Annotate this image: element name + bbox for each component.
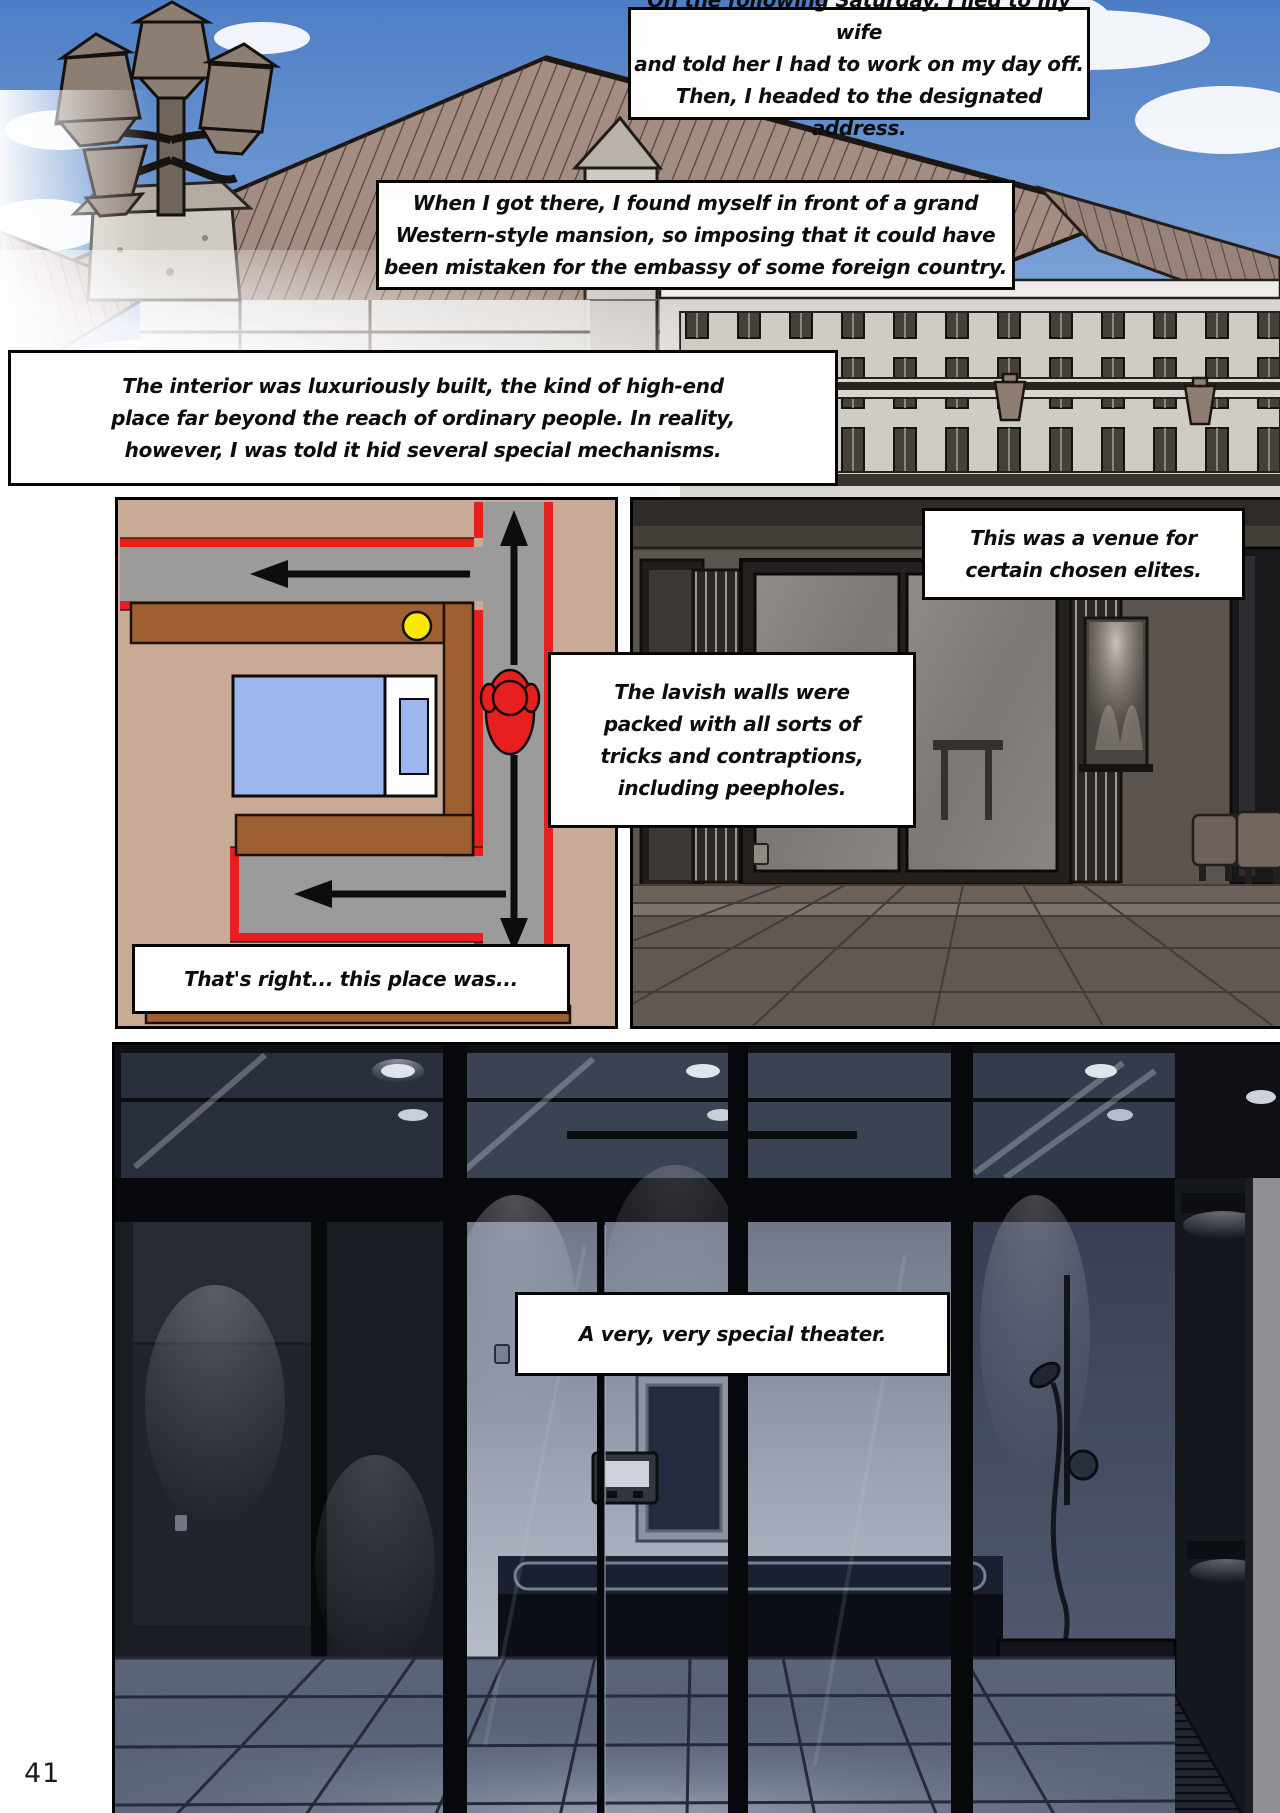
- caption-narration-5: The lavish walls were packed with all so…: [548, 652, 916, 828]
- page-number: 41: [24, 1758, 60, 1789]
- caption-text: That's right... this place was...: [135, 963, 567, 995]
- caption-narration-3: The interior was luxuriously built, the …: [8, 350, 838, 486]
- tiled-floor: [115, 1658, 1175, 1813]
- caption-narration-7: A very, very special theater.: [515, 1292, 950, 1376]
- manga-page: On the following Saturday, I lied to my …: [0, 0, 1280, 1813]
- caption-text: A very, very special theater.: [518, 1318, 947, 1350]
- wall-switch-icon: [175, 1515, 187, 1531]
- wall-art-panel: [1079, 618, 1153, 772]
- caption-text: The interior was luxuriously built, the …: [11, 370, 835, 466]
- bed-icon: [233, 676, 436, 796]
- caption-text: When I got there, I found myself in fron…: [379, 187, 1012, 283]
- caption-narration-4: This was a venue for certain chosen elit…: [922, 508, 1245, 600]
- panel-theater: [112, 1042, 1280, 1813]
- lobby-floor: [633, 885, 1280, 1026]
- light-switch-icon: [753, 844, 768, 864]
- transom-windows: [121, 1053, 1276, 1178]
- caption-narration-2: When I got there, I found myself in fron…: [376, 180, 1015, 290]
- bathtub-icon: [498, 1556, 1003, 1662]
- caption-narration-1: On the following Saturday, I lied to my …: [628, 7, 1090, 120]
- towel-bar-icon: [567, 1131, 857, 1139]
- caption-text: On the following Saturday, I lied to my …: [631, 0, 1087, 144]
- wall-switch-icon: [495, 1345, 509, 1363]
- peephole-marker-icon: [403, 612, 431, 640]
- caption-narration-6: That's right... this place was...: [132, 944, 570, 1014]
- shelf-column: [1175, 1178, 1280, 1813]
- caption-text: This was a venue for certain chosen elit…: [925, 522, 1242, 586]
- caption-text: The lavish walls were packed with all so…: [551, 676, 913, 804]
- faucet-valve-icon: [1069, 1451, 1097, 1479]
